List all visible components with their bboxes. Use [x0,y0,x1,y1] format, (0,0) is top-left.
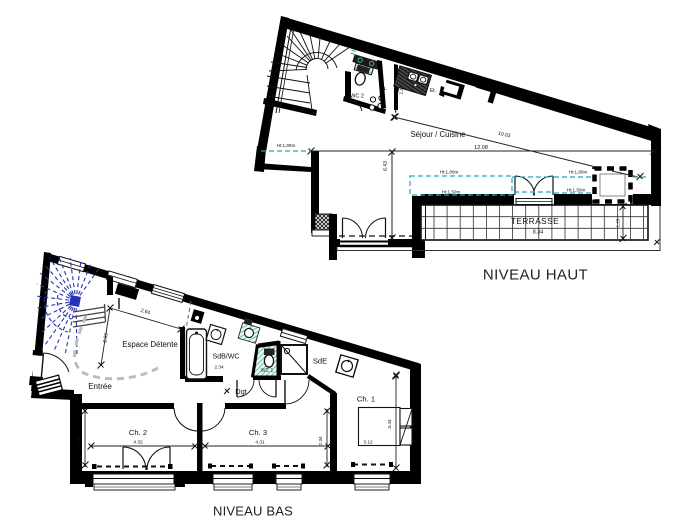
svg-text:SdB/WC: SdB/WC [213,354,240,361]
svg-text:2.34: 2.34 [76,436,82,446]
svg-text:Et.: Et. [430,88,436,94]
svg-text:3.44: 3.44 [387,419,393,429]
svg-text:1.25: 1.25 [616,218,621,227]
svg-text:4.31: 4.31 [255,440,265,446]
svg-text:Ch. 2: Ch. 2 [129,428,147,437]
svg-text:SdE: SdE [313,357,327,366]
svg-text:NIVEAU HAUT: NIVEAU HAUT [483,267,588,284]
svg-text:Entrée: Entrée [88,382,112,391]
svg-text:Ht:1,80m: Ht:1,80m [277,143,296,148]
svg-text:TERRASSE: TERRASSE [511,217,559,226]
svg-text:Ch. 3: Ch. 3 [249,428,267,437]
svg-text:12.08: 12.08 [474,145,488,151]
svg-text:NIVEAU BAS: NIVEAU BAS [213,504,293,519]
svg-text:L.L: L.L [380,86,387,92]
svg-text:4.32: 4.32 [133,440,143,446]
svg-text:Ht:1,50m: Ht:1,50m [442,189,461,194]
svg-text:Ch. 1: Ch. 1 [357,395,375,404]
svg-text:WC 1: WC 1 [261,368,274,374]
svg-text:Séjour / Cuisine: Séjour / Cuisine [410,130,465,139]
svg-text:Dgt: Dgt [235,387,247,396]
svg-text:3.12: 3.12 [363,440,373,446]
svg-text:2.34: 2.34 [318,436,324,446]
svg-text:6.43: 6.43 [383,161,389,171]
svg-text:Ht:1,80m: Ht:1,80m [440,170,459,175]
svg-text:8.34: 8.34 [533,230,544,236]
svg-text:Ht:1,80m: Ht:1,80m [569,170,588,175]
svg-text:Ht:1,50m: Ht:1,50m [567,188,586,193]
svg-text:Espace Détente: Espace Détente [122,340,177,349]
svg-text:2.34: 2.34 [214,365,224,371]
svg-text:WC 2: WC 2 [350,94,364,100]
